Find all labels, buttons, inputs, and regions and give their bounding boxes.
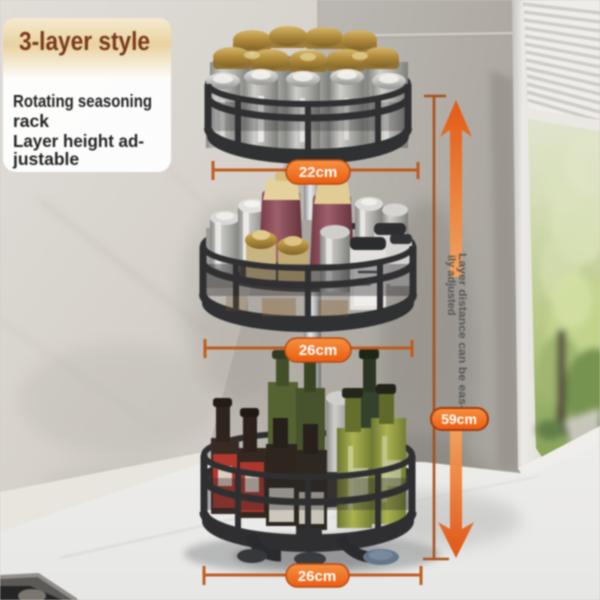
- svg-text:59cm: 59cm: [441, 411, 477, 427]
- svg-text:rack: rack: [13, 111, 49, 131]
- svg-text:ily adjusted: ily adjusted: [445, 255, 457, 316]
- svg-text:Layer height ad-: Layer height ad-: [13, 131, 144, 151]
- svg-text:26cm: 26cm: [298, 568, 336, 585]
- svg-text:22cm: 22cm: [299, 164, 337, 181]
- svg-text:26cm: 26cm: [299, 342, 337, 359]
- svg-text:justable: justable: [12, 149, 79, 169]
- svg-text:3-layer style: 3-layer style: [19, 28, 150, 56]
- svg-text:Rotating seasoning: Rotating seasoning: [13, 91, 152, 111]
